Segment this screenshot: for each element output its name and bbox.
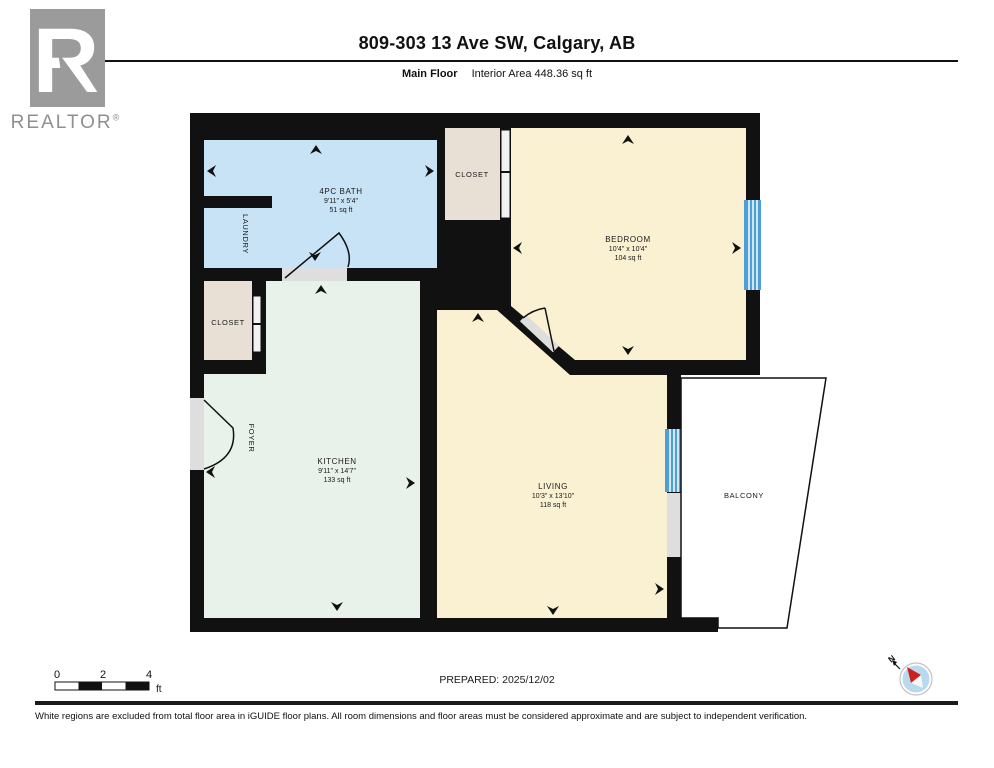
scale-bar: 0 2 4 ft [54, 669, 162, 695]
prepared-date: PREPARED: 2025/12/02 [377, 674, 617, 686]
room-bath: 4PC BATH 9'11" x 5'4" 51 sq ft LAUNDRY [204, 140, 437, 281]
laundry-partition-wall [204, 196, 272, 208]
compass: N [886, 653, 932, 695]
svg-text:2: 2 [100, 669, 106, 681]
footer-divider [35, 701, 958, 705]
svg-text:10'3" x 13'10": 10'3" x 13'10" [532, 493, 575, 500]
svg-text:4PC BATH: 4PC BATH [319, 187, 362, 196]
svg-text:133 sq ft: 133 sq ft [324, 477, 351, 484]
svg-text:10'4" x 10'4": 10'4" x 10'4" [609, 246, 648, 253]
closet-left-sliding-door [253, 296, 261, 352]
laundry-label: LAUNDRY [241, 214, 250, 254]
svg-text:ft: ft [156, 684, 162, 695]
svg-text:118 sq ft: 118 sq ft [540, 502, 566, 509]
svg-text:LIVING: LIVING [538, 482, 568, 491]
realtor-logo: R [30, 9, 105, 112]
svg-text:0: 0 [54, 669, 60, 681]
bedroom-window [744, 200, 761, 290]
room-balcony: BALCONY [681, 378, 826, 628]
room-bedroom: BEDROOM 10'4" x 10'4" 104 sq ft [511, 128, 761, 360]
svg-text:9'11" x 5'4": 9'11" x 5'4" [324, 198, 358, 205]
svg-text:51 sq ft: 51 sq ft [330, 207, 353, 214]
svg-text:BALCONY: BALCONY [724, 491, 764, 500]
svg-text:KITCHEN: KITCHEN [317, 457, 356, 466]
svg-text:104 sq ft: 104 sq ft [615, 255, 642, 262]
living-window [665, 429, 682, 492]
svg-text:BEDROOM: BEDROOM [605, 235, 651, 244]
foyer-label: FOYER [247, 424, 256, 453]
svg-text:CLOSET: CLOSET [455, 170, 489, 179]
svg-text:9'11" x 14'7": 9'11" x 14'7" [318, 468, 356, 475]
floorplan-svg: R 4PC BATH 9'11" x 5'4" 51 sq ft LAUNDRY… [0, 0, 994, 768]
svg-text:4: 4 [146, 669, 152, 681]
svg-text:CLOSET: CLOSET [211, 318, 245, 327]
closet-left: CLOSET [204, 281, 266, 374]
floorplan-page: 809-303 13 Ave SW, Calgary, AB Main Floo… [0, 0, 994, 768]
disclaimer-text: White regions are excluded from total fl… [35, 711, 965, 722]
closet-top-sliding-door [501, 130, 510, 218]
